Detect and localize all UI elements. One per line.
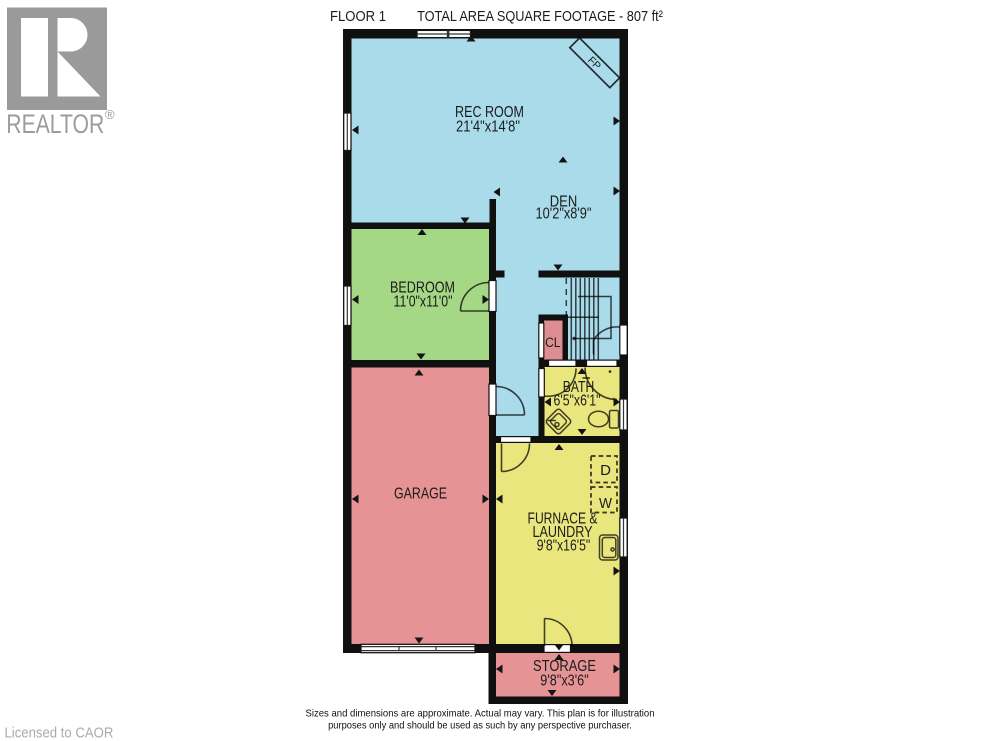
svg-text:Sizes and dimensions are appro: Sizes and dimensions are approximate. Ac… [305,708,654,719]
svg-text:CL: CL [545,334,560,350]
svg-text:FLOOR 1: FLOOR 1 [330,7,386,24]
svg-text:11'0"x11'0": 11'0"x11'0" [394,293,453,311]
svg-text:®: ® [105,107,115,122]
svg-text:9'8"x3'6": 9'8"x3'6" [540,672,588,690]
svg-text:TOTAL AREA SQUARE FOOTAGE - 80: TOTAL AREA SQUARE FOOTAGE - 807 ft² [417,7,663,24]
svg-text:D: D [600,462,611,479]
svg-text:9'8"x16'5": 9'8"x16'5" [537,537,590,555]
svg-text:10'2"x8'9": 10'2"x8'9" [536,205,592,223]
svg-text:6'5"x6'1": 6'5"x6'1" [554,392,601,410]
svg-text:REALTOR: REALTOR [6,110,104,140]
svg-text:GARAGE: GARAGE [394,485,447,503]
svg-text:purposes only and should be us: purposes only and should be used as such… [328,720,632,731]
svg-text:W: W [599,496,612,513]
svg-text:21'4"x14'8": 21'4"x14'8" [456,118,520,136]
svg-text:Licensed to CAOR: Licensed to CAOR [5,724,114,741]
